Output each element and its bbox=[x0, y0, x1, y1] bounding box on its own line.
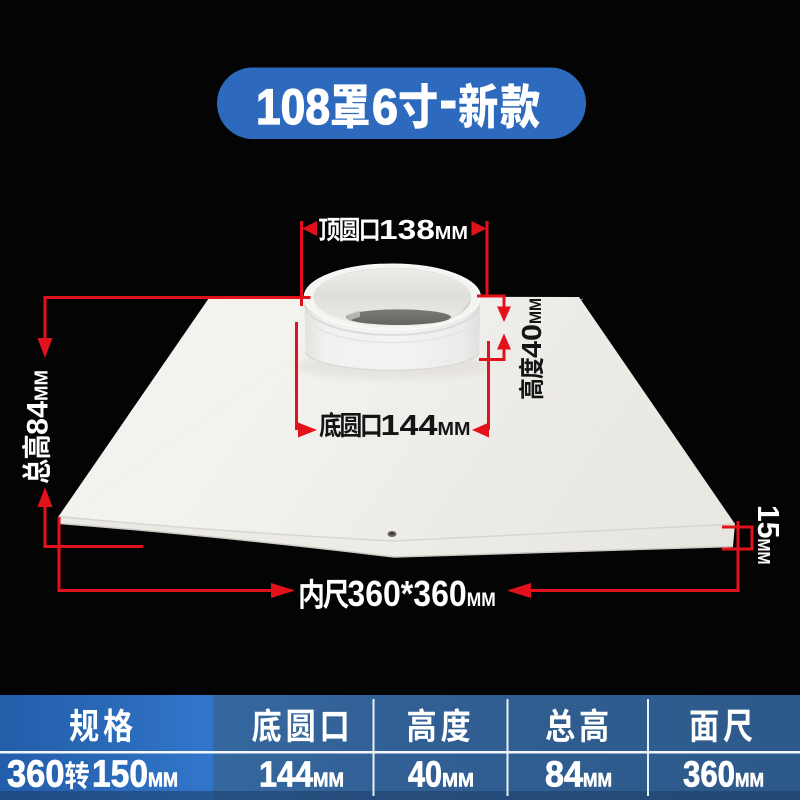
svg-text:360*360: 360*360 bbox=[347, 573, 466, 614]
svg-text:MM: MM bbox=[313, 770, 344, 792]
svg-text:150: 150 bbox=[92, 754, 148, 796]
svg-text:138: 138 bbox=[379, 214, 435, 245]
svg-text:108: 108 bbox=[256, 79, 330, 135]
svg-text:MM: MM bbox=[583, 771, 612, 792]
svg-text:MM: MM bbox=[148, 770, 178, 792]
svg-text:15: 15 bbox=[751, 505, 786, 539]
svg-text:MM: MM bbox=[735, 771, 764, 792]
svg-text:84: 84 bbox=[22, 401, 55, 435]
svg-text:6: 6 bbox=[372, 79, 398, 135]
svg-text:MM: MM bbox=[442, 771, 474, 792]
svg-text:360: 360 bbox=[683, 754, 735, 795]
svg-text:144: 144 bbox=[381, 410, 438, 442]
svg-text:MM: MM bbox=[32, 370, 52, 401]
svg-text:MM: MM bbox=[438, 419, 471, 439]
svg-text:MM: MM bbox=[526, 298, 545, 324]
svg-text:40: 40 bbox=[516, 324, 547, 358]
svg-text:MM: MM bbox=[754, 539, 774, 565]
svg-text:MM: MM bbox=[435, 223, 468, 243]
svg-text:40: 40 bbox=[408, 754, 442, 795]
svg-text:144: 144 bbox=[259, 754, 313, 795]
svg-text:MM: MM bbox=[467, 590, 496, 611]
svg-text:360: 360 bbox=[7, 754, 65, 796]
svg-text:84: 84 bbox=[545, 754, 583, 795]
